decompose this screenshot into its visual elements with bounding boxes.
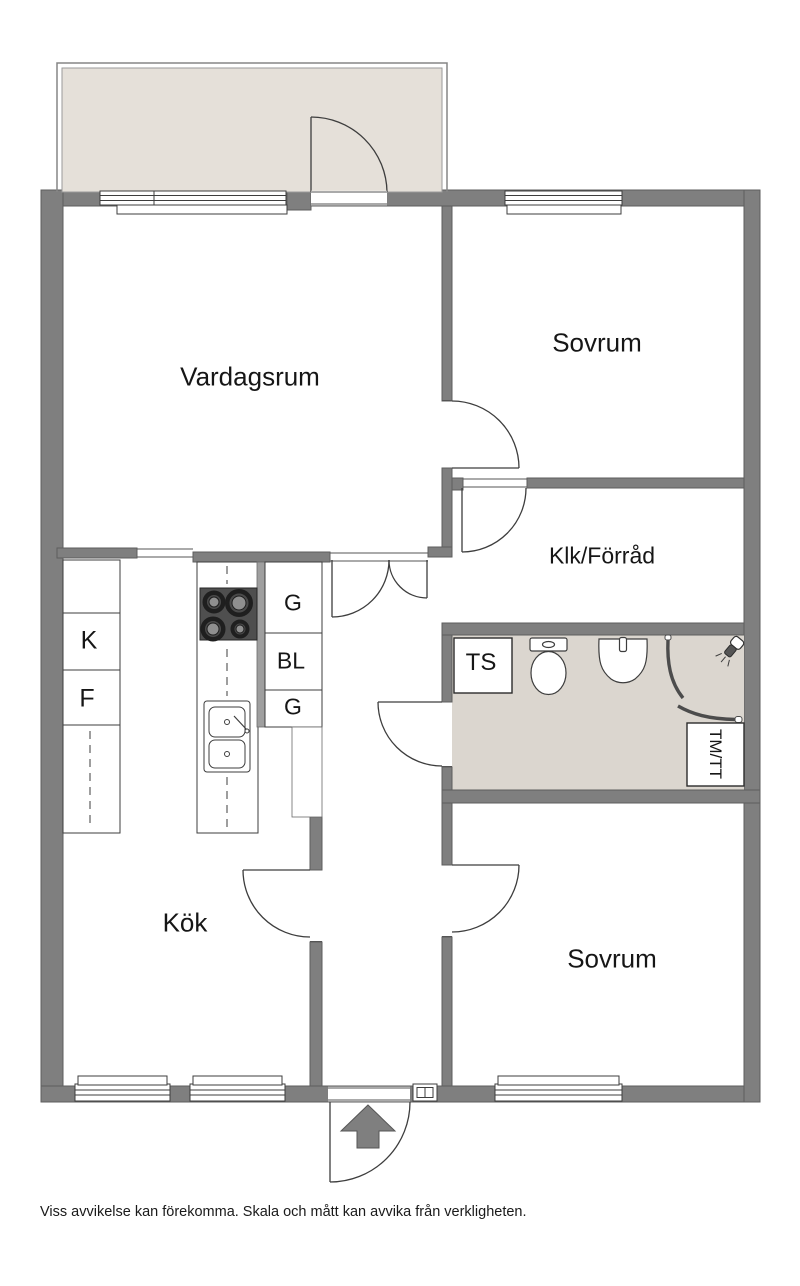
door-kitchen (243, 870, 310, 937)
door-bedroom1 (452, 401, 519, 468)
cabinet-label-ts: TS (466, 649, 497, 677)
wall-kitchen-hall-b (310, 942, 322, 1086)
floor-plan: Vardagsrum Sovrum Klk/Förråd Kök Sovrum … (0, 0, 800, 1286)
kitchen-sink-icon (204, 701, 250, 772)
door-bathroom (378, 702, 442, 766)
room-label-vardagsrum: Vardagsrum (180, 362, 320, 393)
door-closet (462, 488, 526, 552)
window-entry (413, 1084, 437, 1101)
wall-hall-bedroom2-a (442, 803, 452, 865)
cabinet-label-g-lower: G (284, 694, 302, 721)
room-label-sovrum-2: Sovrum (567, 944, 657, 975)
wall-pier-top (287, 190, 311, 210)
wall-kitchen-top-bar (193, 552, 330, 562)
room-label-sovrum-1: Sovrum (552, 328, 642, 359)
wall-kitchen-hall-a (310, 817, 322, 870)
room-label-klk-forrad: Klk/Förråd (549, 543, 655, 570)
wall-left (41, 190, 63, 1102)
disclaimer-text: Viss avvikelse kan förekomma. Skala och … (40, 1204, 527, 1220)
appliance-label-f: F (79, 685, 94, 714)
wall-bedroom1-closet (527, 478, 744, 488)
wall-hall-stub (428, 547, 452, 557)
window-livingroom (100, 191, 287, 214)
toilet-icon (530, 638, 567, 695)
cabinet-label-bl: BL (277, 648, 305, 675)
stove-icon (200, 588, 257, 641)
window-bedroom2 (495, 1076, 622, 1101)
floor-plan-drawing (0, 0, 800, 1286)
cabinet-label-g-upper: G (284, 590, 302, 617)
wall-bathroom-left-b (442, 767, 452, 790)
window-bedroom1 (505, 191, 622, 214)
wall-hall-bedroom2-b (442, 937, 452, 1086)
appliance-label-k: K (81, 627, 98, 656)
cabinet-label-tm-tt: TM/TT (705, 729, 725, 779)
wall-kitchen-stub-left (57, 548, 137, 558)
door-livingroom-double (332, 560, 427, 617)
window-kitchen-1 (75, 1076, 170, 1101)
door-bedroom2 (452, 865, 519, 932)
wall-hall-upper (442, 468, 452, 557)
wall-bathroom-top (442, 623, 744, 635)
room-label-kok: Kök (163, 908, 208, 939)
wall-living-bedroom1 (442, 206, 452, 401)
entrance-arrow (341, 1105, 395, 1148)
balcony (57, 63, 447, 192)
wall-bathroom-bottom (442, 790, 760, 803)
wall-right (744, 190, 760, 1102)
wall-bathroom-left-a (442, 635, 452, 702)
window-kitchen-2 (190, 1076, 285, 1101)
